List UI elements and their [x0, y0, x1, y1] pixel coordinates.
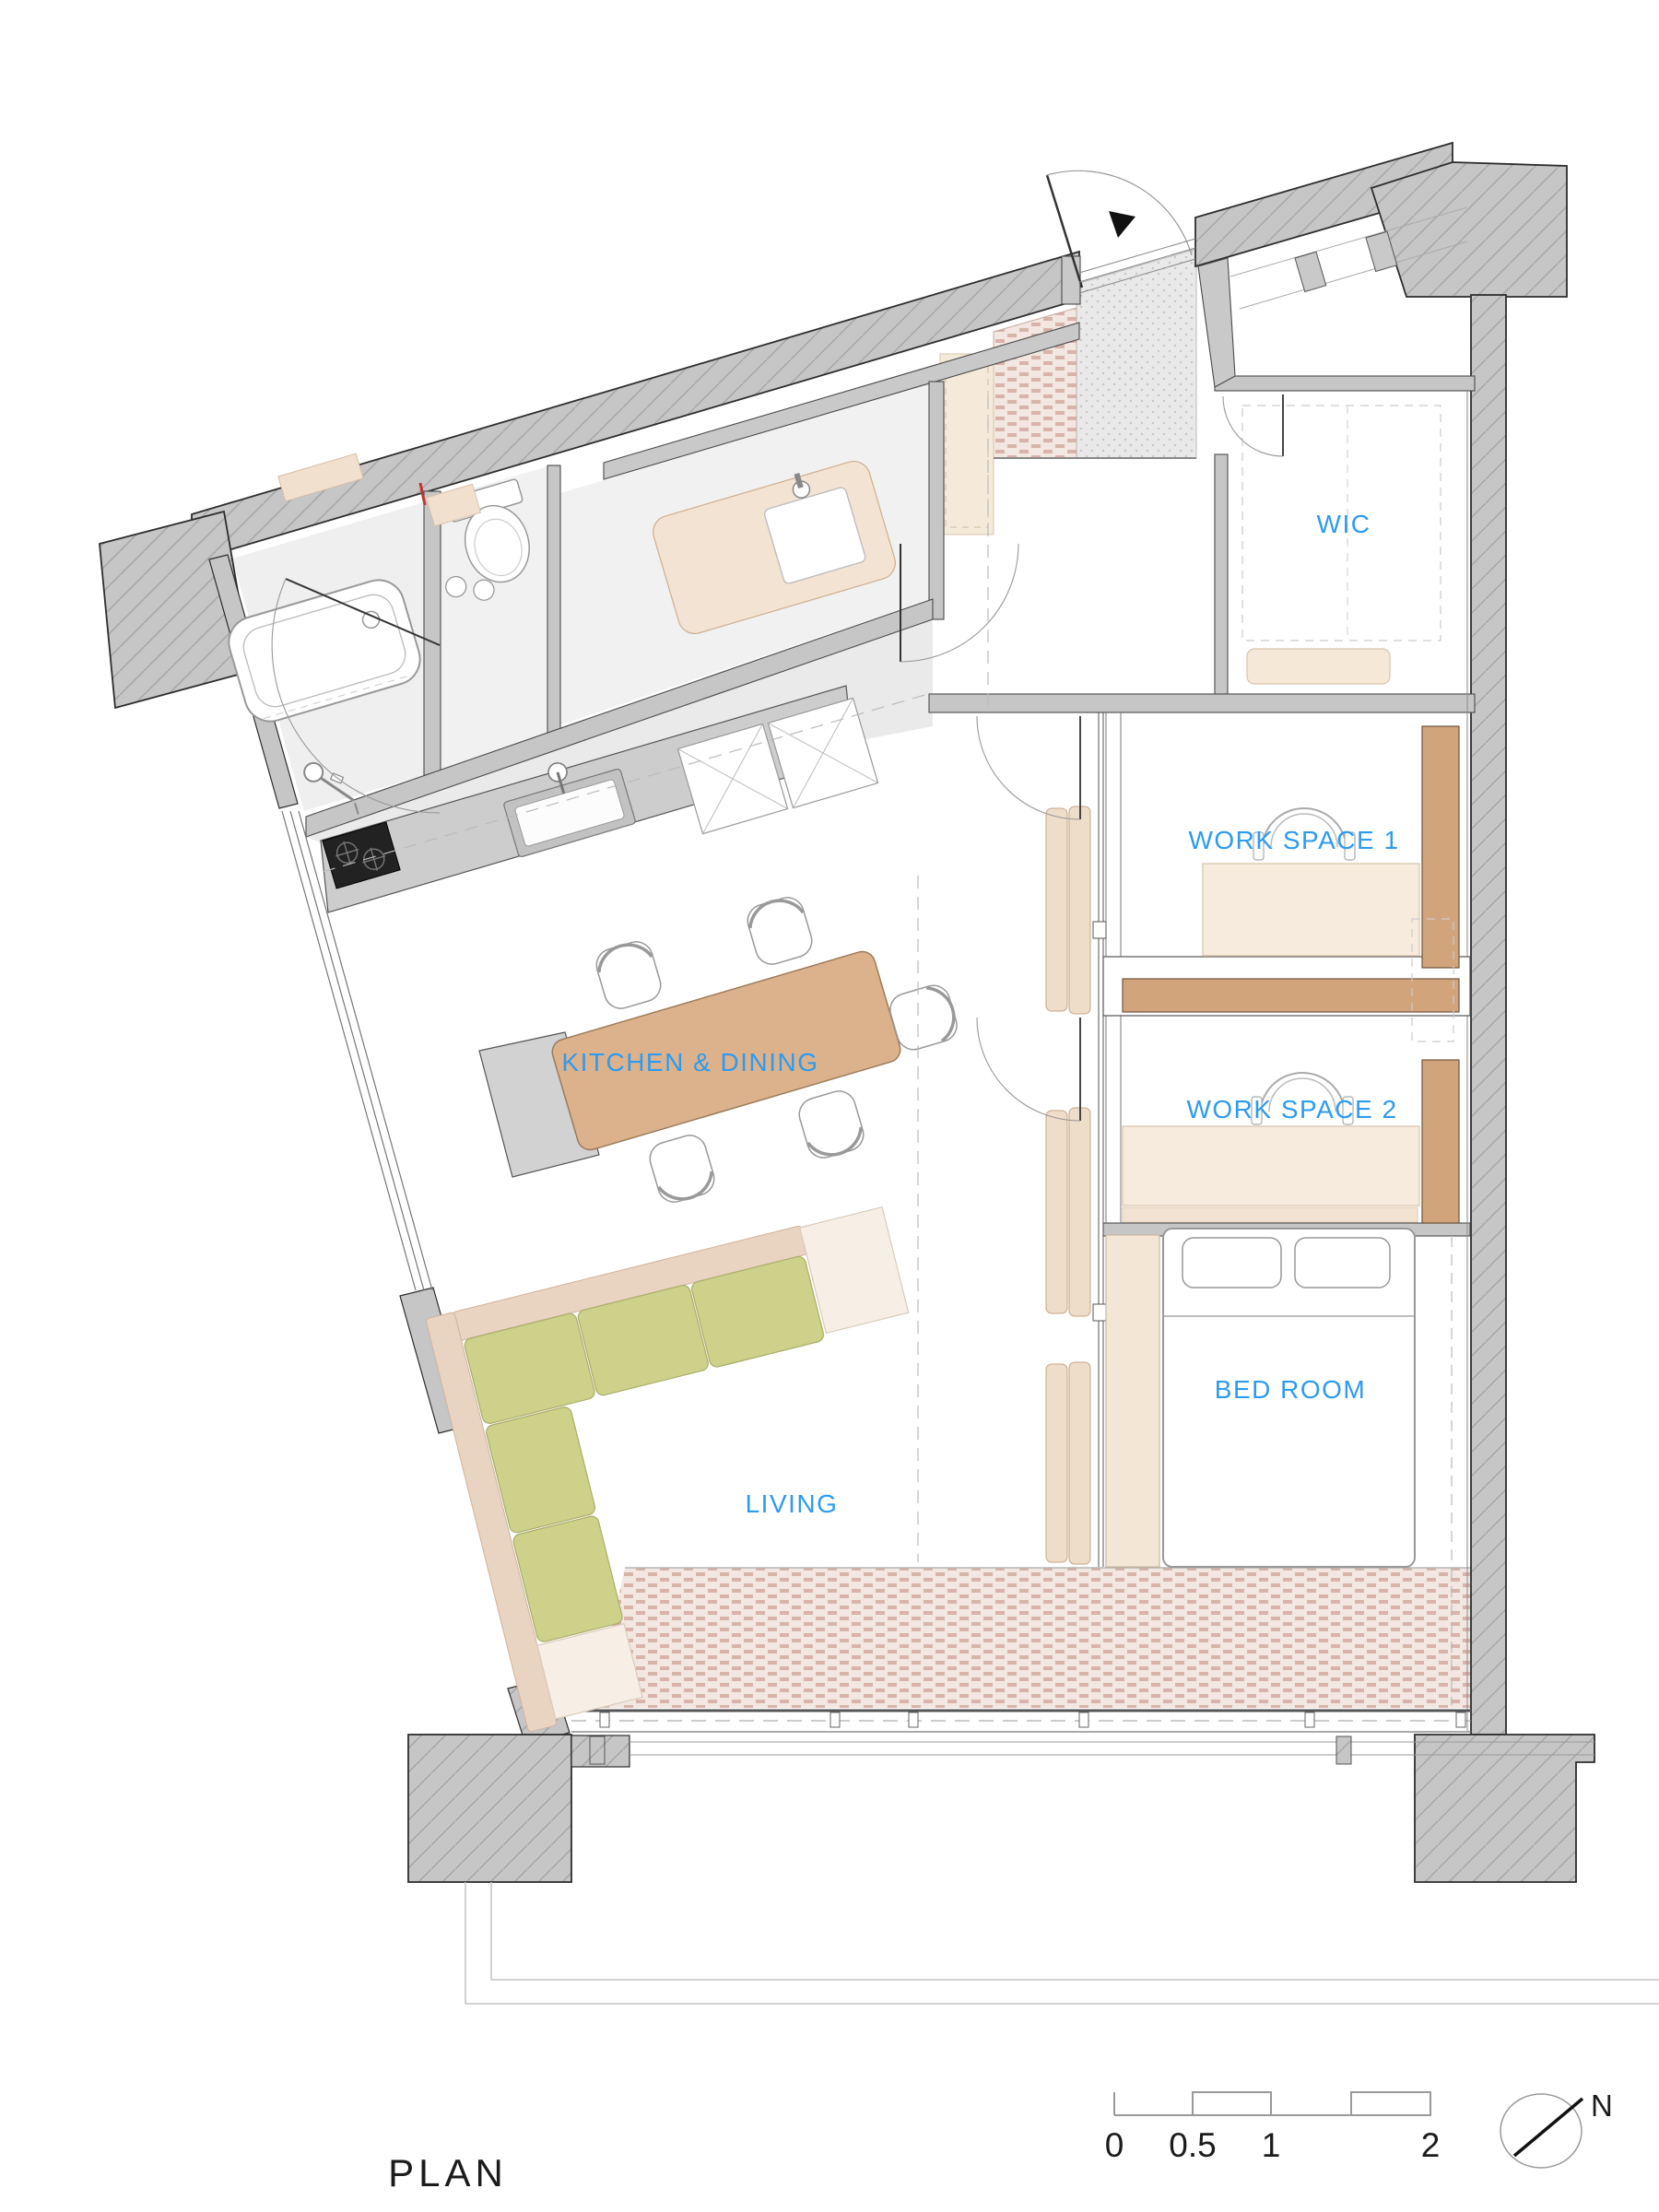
right-wall: [1471, 295, 1506, 1735]
wic-shelf: [1247, 649, 1390, 684]
wall-wic-left: [1215, 454, 1228, 694]
bottom-left-block: [408, 1735, 571, 1882]
ws2-door: [977, 1018, 1080, 1121]
floor-plan-drawing: WIC WORK SPACE 1 WORK SPACE 2 BED ROOM K…: [0, 0, 1659, 2212]
sliding-panel: [1046, 1111, 1067, 1313]
scale-tick-1: 1: [1262, 2126, 1281, 2164]
room-label-work-space-2: WORK SPACE 2: [1186, 1095, 1397, 1124]
window-post-hatched-left: [590, 1736, 605, 1764]
wall-bath-toilet: [424, 491, 441, 775]
wall-wic-ws1: [929, 694, 1475, 712]
balcony: [594, 1568, 1471, 1708]
ws2-wood-closet: [1422, 1060, 1459, 1223]
sliding-panel: [1069, 806, 1090, 1014]
sliding-doors: [1046, 712, 1106, 1567]
wic-room: [1242, 406, 1441, 684]
sliding-panel: [1046, 808, 1067, 1011]
site-outline-lines: [465, 1882, 1659, 2004]
dining-chair: [744, 894, 816, 969]
room-label-living: LIVING: [746, 1489, 839, 1518]
floor-plan-page: WIC WORK SPACE 1 WORK SPACE 2 BED ROOM K…: [0, 0, 1659, 2212]
window-mullions: [600, 1712, 1465, 1727]
room-label-wic: WIC: [1317, 510, 1371, 538]
wall-washroom-entry: [929, 382, 944, 619]
ws1-wood-closet: [1422, 726, 1459, 968]
room-label-work-space-1: WORK SPACE 1: [1188, 826, 1399, 854]
ws1-door: [977, 716, 1080, 819]
balcony-floor: [594, 1568, 1471, 1708]
corner-block-topright: [1371, 162, 1567, 297]
wic-door: [1223, 394, 1283, 456]
ws-divider-wood-shelf: [1123, 979, 1459, 1012]
entrance-left-jamb: [1062, 256, 1080, 304]
ws2-desk: [1123, 1126, 1419, 1206]
wall-wic-top: [1215, 376, 1475, 391]
scale-tick-0: 0: [1105, 2126, 1124, 2164]
pillow: [1182, 1238, 1281, 1288]
dining-chair: [646, 1132, 718, 1206]
ws1-desk: [1203, 864, 1419, 956]
bottom-right-block: [1415, 1735, 1594, 1882]
north-label: N: [1591, 2088, 1613, 2123]
genkan-floor: [1077, 249, 1196, 458]
pillow: [1295, 1238, 1390, 1288]
north-arrow: N: [1500, 2088, 1613, 2168]
entry-closet: [940, 354, 994, 535]
scale-bar: 0 0.5 1 2: [1105, 2092, 1441, 2164]
bedroom-closet: [1106, 1235, 1159, 1567]
sliding-panel: [1046, 1364, 1067, 1562]
sliding-panel: [1069, 1362, 1090, 1564]
dining-chair: [795, 1088, 867, 1162]
sliding-panel: [1069, 1108, 1090, 1316]
dining-chair: [593, 938, 665, 1013]
plan-title: PLAN: [388, 2151, 508, 2194]
room-label-kitchen-dining: KITCHEN & DINING: [561, 1048, 818, 1077]
room-label-bed-room: BED ROOM: [1215, 1375, 1366, 1404]
window-post-hatched-right: [1336, 1736, 1351, 1764]
entrance-marker-triangle: [1109, 211, 1135, 238]
scale-tick-05: 0.5: [1169, 2126, 1216, 2164]
ws2-desk-strip: [1123, 1207, 1418, 1222]
wall-wic-west-joint: [1198, 258, 1235, 387]
scale-tick-2: 2: [1421, 2126, 1441, 2164]
wall-toilet-washroom: [547, 465, 560, 733]
